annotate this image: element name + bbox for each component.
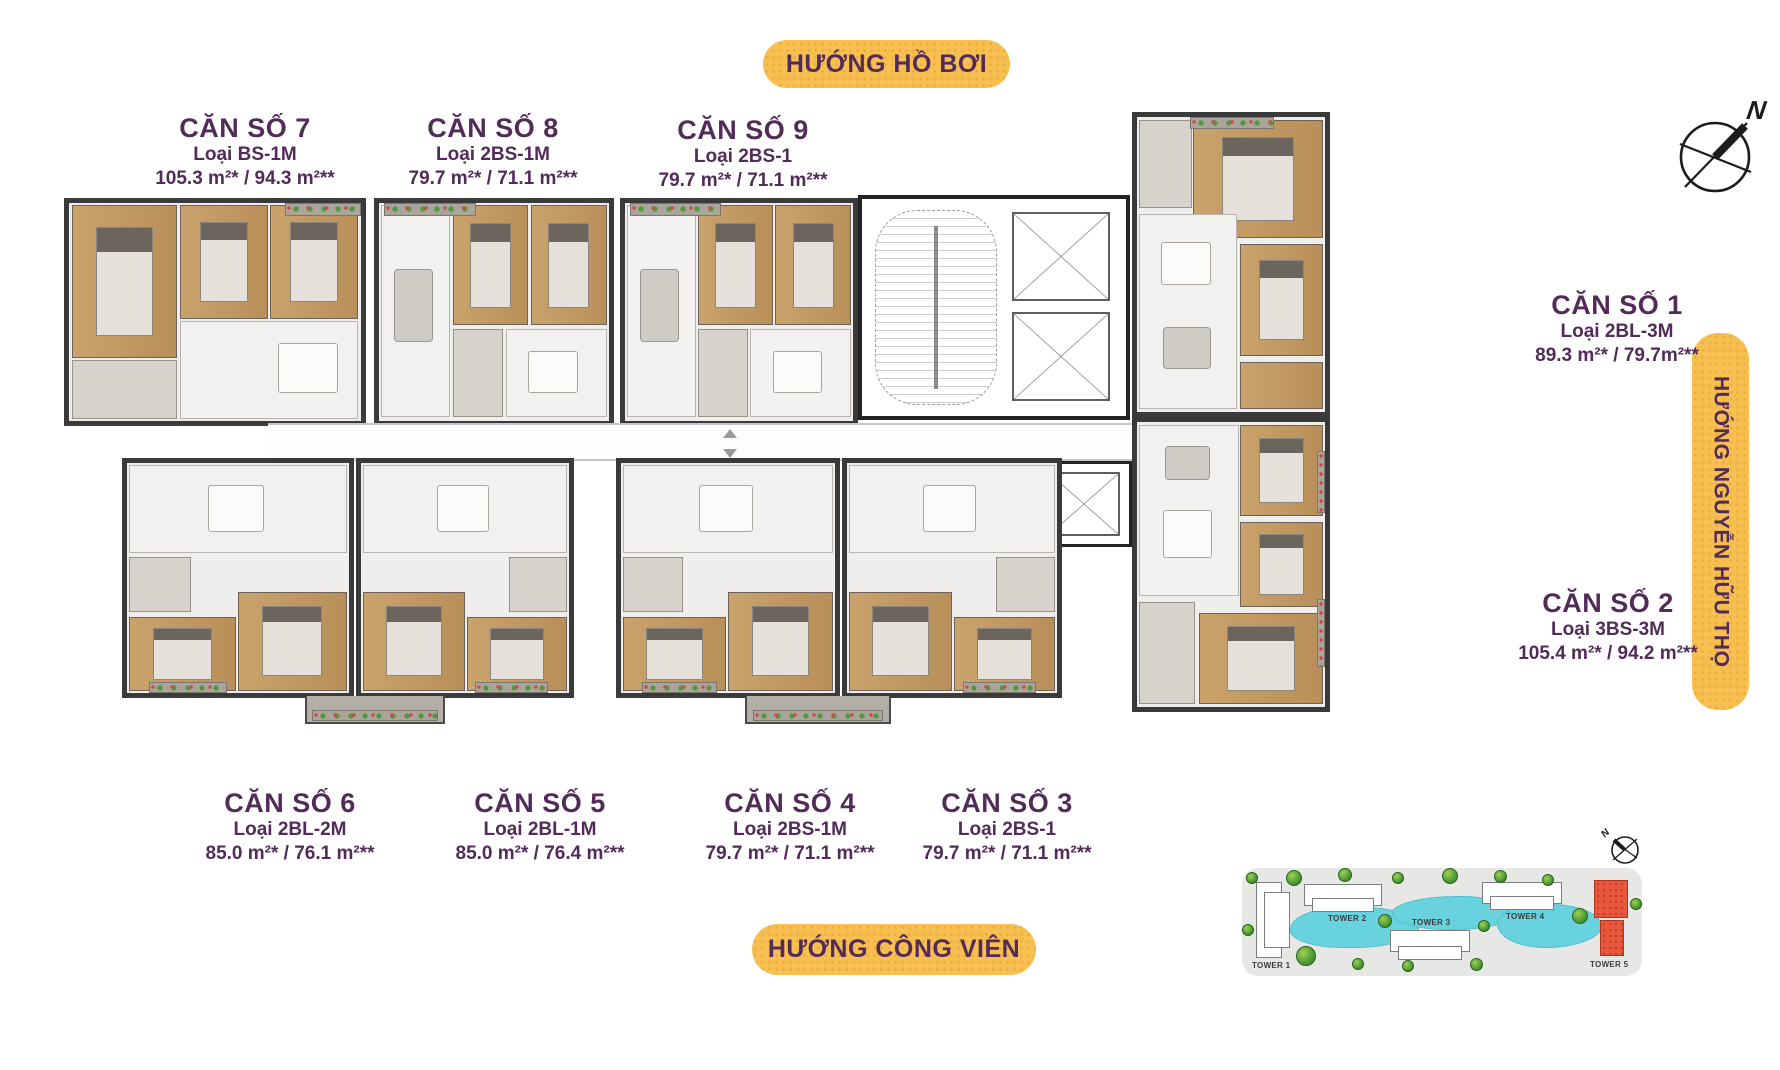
unit-5-area: 85.0 m²* / 76.4 m²** — [415, 842, 665, 866]
banner-pool-label: HƯỚNG HỒ BƠI — [786, 50, 987, 79]
unit-3-type: Loại 2BS-1 — [882, 818, 1132, 842]
unit-plan-6 — [122, 458, 354, 698]
unit-4-name: CĂN SỐ 4 — [665, 788, 915, 818]
site-tower-3-label: TOWER 3 — [1412, 918, 1450, 927]
unit-9-name: CĂN SỐ 9 — [618, 115, 868, 145]
bathroom — [509, 557, 567, 612]
unit-plan-8 — [374, 198, 614, 426]
unit-label-5: CĂN SỐ 5 Loại 2BL-1M 85.0 m²* / 76.4 m²*… — [415, 788, 665, 866]
unit-plan-9 — [620, 198, 858, 426]
bathroom — [129, 557, 191, 612]
unit-9-type: Loại 2BS-1 — [618, 145, 868, 169]
bed-icon — [470, 223, 511, 308]
tree-icon — [1542, 874, 1554, 886]
site-tower-2-label: TOWER 2 — [1328, 914, 1366, 923]
unit-2-name: CĂN SỐ 2 — [1478, 588, 1738, 618]
bed-icon — [386, 606, 442, 676]
corridor-arrow-icon — [723, 449, 737, 458]
planter-strip — [475, 682, 548, 694]
planter-strip — [384, 203, 476, 216]
bed-icon — [646, 628, 702, 680]
living-dining — [623, 465, 833, 552]
unit-5-name: CĂN SỐ 5 — [415, 788, 665, 818]
dining-table — [1163, 510, 1212, 557]
tree-icon — [1478, 920, 1490, 932]
tree-icon — [1286, 870, 1302, 886]
living-dining — [1139, 425, 1239, 596]
bed-icon — [262, 606, 322, 676]
sofa-icon — [1163, 327, 1211, 369]
unit-label-9: CĂN SỐ 9 Loại 2BS-1 79.7 m²* / 71.1 m²** — [618, 115, 868, 193]
tree-icon — [1442, 868, 1458, 884]
bed-icon — [1227, 626, 1295, 690]
bed-icon — [153, 628, 212, 680]
bed-icon — [1222, 137, 1294, 221]
bedroom — [1240, 425, 1323, 516]
site-tower-5-label: TOWER 5 — [1590, 960, 1628, 969]
site-tower-5-highlight — [1600, 920, 1624, 956]
bathroom — [996, 557, 1055, 612]
bedroom — [849, 592, 952, 691]
bathroom — [1139, 602, 1195, 705]
bathroom — [623, 557, 683, 612]
tree-icon — [1246, 872, 1258, 884]
tree-icon — [1352, 958, 1364, 970]
tree-icon — [1338, 868, 1352, 882]
bed-icon — [752, 606, 810, 676]
bedroom — [1240, 244, 1323, 356]
planter-strip — [1190, 117, 1275, 129]
bedroom — [623, 617, 726, 691]
unit-1-type: Loại 2BL-3M — [1492, 320, 1742, 344]
bedroom — [1240, 362, 1323, 409]
dining-table — [699, 485, 753, 532]
bedroom — [698, 205, 773, 325]
site-tower-4-label: TOWER 4 — [1506, 912, 1544, 921]
unit-label-2: CĂN SỐ 2 Loại 3BS-3M 105.4 m²* / 94.2 m²… — [1478, 588, 1738, 666]
planter-strip — [642, 682, 717, 694]
elevator — [1012, 212, 1110, 301]
unit-8-type: Loại 2BS-1M — [368, 143, 618, 167]
dining-table — [437, 485, 489, 532]
planter-strip — [285, 203, 361, 216]
banner-park-direction: HƯỚNG CÔNG VIÊN — [752, 924, 1036, 975]
unit-4-type: Loại 2BS-1M — [665, 818, 915, 842]
planter-strip — [1317, 599, 1325, 667]
unit-2-type: Loại 3BS-3M — [1478, 618, 1738, 642]
tree-icon — [1378, 914, 1392, 928]
unit-4-area: 79.7 m²* / 71.1 m²** — [665, 842, 915, 866]
living-dining — [129, 465, 347, 552]
planter-strip — [149, 682, 227, 694]
site-tower-3-outline — [1398, 946, 1462, 960]
dining-table — [923, 485, 976, 532]
dining-table — [528, 351, 578, 394]
floorplan-page: { "banners": { "top": "HƯỚNG HỒ BƠI", "b… — [0, 0, 1780, 1070]
sofa-icon — [640, 269, 679, 342]
unit-8-area: 79.7 m²* / 71.1 m²** — [368, 167, 618, 191]
planter-strip — [963, 682, 1037, 694]
unit-6-type: Loại 2BL-2M — [165, 818, 415, 842]
bedroom — [954, 617, 1055, 691]
unit-plan-7 — [64, 198, 366, 426]
living-dining — [363, 465, 567, 552]
unit-plan-3 — [842, 458, 1062, 698]
site-tower-2-outline — [1312, 898, 1374, 912]
unit-1-name: CĂN SỐ 1 — [1492, 290, 1742, 320]
staircase — [875, 210, 996, 405]
tree-icon — [1296, 946, 1316, 966]
unit-9-area: 79.7 m²* / 71.1 m²** — [618, 169, 868, 193]
unit-7-area: 105.3 m²* / 94.3 m²** — [120, 167, 370, 191]
unit-5-type: Loại 2BL-1M — [415, 818, 665, 842]
site-tower-1-label: TOWER 1 — [1252, 961, 1290, 970]
dining-table — [1161, 242, 1211, 284]
site-compass-icon: N — [1600, 828, 1644, 868]
bedroom — [180, 205, 268, 318]
balcony — [745, 696, 891, 724]
planter-strip — [1317, 451, 1325, 514]
elevator — [1012, 312, 1110, 401]
corridor — [268, 423, 1136, 461]
bed-icon — [1259, 534, 1304, 594]
bed-icon — [872, 606, 928, 676]
bed-icon — [290, 222, 338, 302]
tree-icon — [1402, 960, 1414, 972]
sofa-icon — [1165, 446, 1210, 480]
bathroom — [453, 329, 504, 416]
site-tower-4-outline — [1490, 896, 1554, 910]
bedroom — [238, 592, 347, 691]
kitchen-dining — [750, 329, 850, 416]
dining-table — [208, 485, 264, 532]
bedroom — [1199, 613, 1323, 704]
unit-6-name: CĂN SỐ 6 — [165, 788, 415, 818]
unit-label-3: CĂN SỐ 3 Loại 2BS-1 79.7 m²* / 71.1 m²** — [882, 788, 1132, 866]
living-dining — [180, 321, 358, 419]
unit-label-8: CĂN SỐ 8 Loại 2BS-1M 79.7 m²* / 71.1 m²*… — [368, 113, 618, 191]
dining-table — [278, 343, 338, 393]
unit-label-1: CĂN SỐ 1 Loại 2BL-3M 89.3 m²* / 79.7m²** — [1492, 290, 1742, 368]
bed-icon — [1259, 260, 1304, 339]
unit-1-area: 89.3 m²* / 79.7m²** — [1492, 344, 1742, 368]
unit-label-6: CĂN SỐ 6 Loại 2BL-2M 85.0 m²* / 76.1 m²*… — [165, 788, 415, 866]
banner-pool-direction: HƯỚNG HỒ BƠI — [763, 40, 1010, 88]
unit-plan-2 — [1132, 417, 1330, 712]
site-map: TOWER 1 TOWER 2 TOWER 3 TOWER 4 TOWER 5 — [1242, 868, 1642, 976]
unit-8-name: CĂN SỐ 8 — [368, 113, 618, 143]
bedroom — [467, 617, 567, 691]
tree-icon — [1494, 870, 1507, 883]
sofa-icon — [394, 269, 433, 342]
bedroom — [72, 205, 177, 358]
bed-icon — [1259, 438, 1304, 502]
tree-icon — [1242, 924, 1254, 936]
bedroom — [728, 592, 833, 691]
bed-icon — [715, 223, 756, 308]
bed-icon — [548, 223, 589, 308]
tree-icon — [1630, 898, 1642, 910]
tree-icon — [1470, 958, 1483, 971]
bedroom — [129, 617, 236, 691]
unit-label-7: CĂN SỐ 7 Loại BS-1M 105.3 m²* / 94.3 m²*… — [120, 113, 370, 191]
unit-label-4: CĂN SỐ 4 Loại 2BS-1M 79.7 m²* / 71.1 m²*… — [665, 788, 915, 866]
compass-icon: N — [1665, 95, 1775, 200]
bathroom — [698, 329, 748, 416]
dining-table — [773, 351, 822, 394]
bedroom — [775, 205, 850, 325]
unit-6-area: 85.0 m²* / 76.1 m²** — [165, 842, 415, 866]
unit-7-type: Loại BS-1M — [120, 143, 370, 167]
bed-icon — [200, 222, 248, 302]
living-dining — [849, 465, 1055, 552]
kitchen-dining — [506, 329, 607, 416]
bedroom — [270, 205, 358, 318]
bedroom — [1240, 522, 1323, 608]
unit-3-area: 79.7 m²* / 71.1 m²** — [882, 842, 1132, 866]
unit-plan-4 — [616, 458, 840, 698]
bed-icon — [490, 628, 545, 680]
site-tower-5-highlight — [1594, 880, 1628, 918]
tree-icon — [1572, 908, 1588, 924]
bed-icon — [96, 227, 154, 335]
planter-strip — [312, 710, 437, 720]
corridor-arrow-icon — [723, 429, 737, 438]
unit-7-name: CĂN SỐ 7 — [120, 113, 370, 143]
bathroom — [1139, 120, 1192, 209]
unit-plan-5 — [356, 458, 574, 698]
bedroom — [363, 592, 465, 691]
living-room — [627, 205, 695, 416]
bed-icon — [793, 223, 834, 308]
tree-icon — [1392, 872, 1404, 884]
bathroom — [72, 360, 177, 419]
site-tower-1-outline — [1264, 892, 1290, 948]
bedroom — [531, 205, 607, 325]
bedroom — [453, 205, 529, 325]
planter-strip — [630, 203, 721, 216]
balcony — [305, 696, 445, 724]
bed-icon — [977, 628, 1032, 680]
unit-3-name: CĂN SỐ 3 — [882, 788, 1132, 818]
banner-park-label: HƯỚNG CÔNG VIÊN — [768, 935, 1020, 964]
living-room — [381, 205, 450, 416]
planter-strip — [753, 710, 884, 720]
unit-plan-1 — [1132, 112, 1330, 417]
unit-2-area: 105.4 m²* / 94.2 m²** — [1478, 642, 1738, 666]
living-dining — [1139, 214, 1237, 409]
building-core — [858, 195, 1130, 420]
